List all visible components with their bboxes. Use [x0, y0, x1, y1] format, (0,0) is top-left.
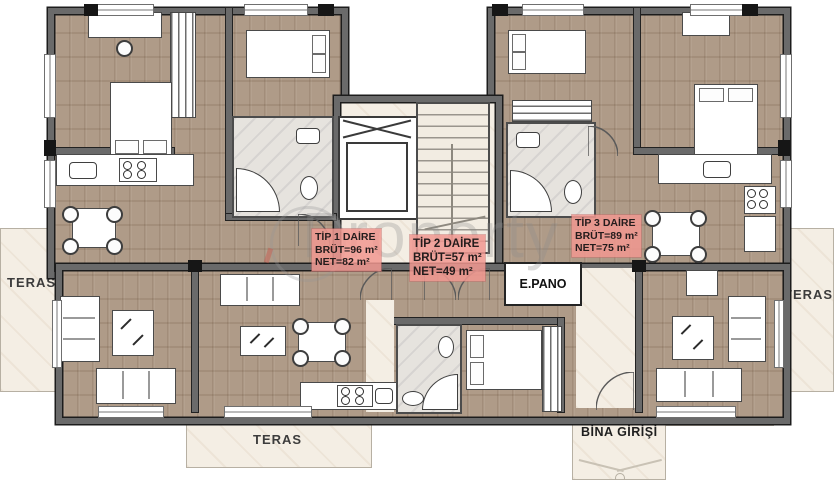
chair-icon	[62, 238, 79, 255]
pillow	[115, 140, 139, 154]
sofa	[60, 296, 100, 362]
column	[188, 260, 202, 272]
bed	[508, 30, 586, 74]
toilet-icon	[300, 176, 318, 200]
apartment-label-tip2: TİP 2 DAİRE BRÜT=57 m² NET=49 m²	[410, 235, 485, 281]
column	[632, 260, 646, 272]
bed	[246, 30, 330, 78]
bed	[466, 330, 542, 390]
kitchen-counter	[300, 382, 398, 410]
window	[780, 160, 792, 208]
column	[44, 140, 56, 156]
column	[778, 140, 790, 156]
chair-icon	[116, 40, 133, 57]
stove-icon	[744, 186, 776, 214]
chair-icon	[644, 246, 661, 263]
window	[690, 4, 750, 16]
chair-icon	[334, 350, 351, 367]
bed	[110, 82, 172, 158]
sink-icon	[402, 391, 424, 406]
partition	[192, 264, 198, 412]
chair-icon	[644, 210, 661, 227]
chair-icon	[292, 318, 309, 335]
apartment-name: TİP 3 DAİRE	[575, 217, 638, 230]
sofa	[220, 274, 300, 306]
bed	[694, 84, 758, 156]
apartment-gross-area: BRÜT=57 m²	[413, 251, 482, 265]
pillow	[470, 335, 484, 358]
chair-icon	[690, 246, 707, 263]
wardrobe	[512, 100, 592, 122]
apartment-name: TİP 2 DAİRE	[413, 237, 482, 251]
chair-icon	[292, 350, 309, 367]
apartment-net-area: NET=82 m²	[315, 256, 378, 269]
pillow	[728, 88, 753, 102]
pillow	[512, 52, 526, 70]
window	[44, 54, 56, 118]
door-arc	[596, 372, 634, 410]
column	[84, 4, 98, 16]
column	[742, 4, 758, 16]
column	[318, 4, 334, 16]
apartment-label-tip3: TİP 3 DAİRE BRÜT=89 m² NET=75 m²	[572, 215, 641, 257]
sink-icon	[69, 162, 97, 179]
kitchen-counter	[658, 154, 772, 184]
stove-icon	[337, 385, 373, 407]
sofa	[728, 296, 766, 362]
terrace-door	[52, 300, 62, 368]
apartment-gross-area: BRÜT=89 m²	[575, 230, 638, 243]
apartment-name: TİP 1 DAİRE	[315, 231, 378, 244]
apartment-label-tip1: TİP 1 DAİRE BRÜT=96 m² NET=82 m²	[312, 229, 381, 271]
shower	[236, 168, 280, 212]
pillow	[699, 88, 724, 102]
window	[522, 4, 584, 16]
door-arc	[360, 268, 392, 300]
column	[492, 4, 508, 16]
terrace-right-label: TERAS	[784, 287, 833, 302]
apartment-gross-area: BRÜT=96 m²	[315, 244, 378, 257]
pillow	[312, 35, 326, 54]
chair-icon	[690, 210, 707, 227]
floor-plan: TERAS TERAS TERAS BİNA GİRİŞİ	[0, 0, 834, 480]
partition	[636, 264, 642, 412]
wardrobe	[170, 12, 196, 118]
pillow	[470, 362, 484, 385]
sink-icon	[296, 128, 320, 144]
path-line	[617, 459, 662, 472]
epano-label: E.PANO	[520, 277, 567, 291]
window	[656, 406, 736, 418]
path-marker	[615, 473, 625, 480]
window	[44, 160, 56, 208]
sofa	[656, 368, 742, 402]
bathroom-tip2	[396, 324, 462, 414]
tv-unit	[672, 316, 714, 360]
chair-icon	[106, 238, 123, 255]
pillow	[512, 34, 526, 52]
sink-icon	[375, 388, 393, 404]
apartment-net-area: NET=49 m²	[413, 265, 482, 279]
side-table	[686, 270, 718, 296]
window	[244, 4, 308, 16]
kitchen-counter	[56, 154, 194, 186]
terrace-door	[774, 300, 784, 368]
door-arc	[588, 126, 618, 156]
apartment-net-area: NET=75 m²	[575, 242, 638, 255]
chair-icon	[62, 206, 79, 223]
chair-icon	[334, 318, 351, 335]
toilet-icon	[438, 336, 454, 358]
stove-icon	[119, 158, 157, 182]
toilet-icon	[564, 180, 582, 204]
sink-icon	[703, 161, 731, 178]
sink-icon	[516, 132, 540, 148]
terrace-bottom-label: TERAS	[253, 432, 302, 447]
wardrobe	[542, 326, 562, 412]
window	[98, 406, 164, 418]
tv-unit	[112, 310, 154, 356]
pillow	[312, 54, 326, 73]
tv-unit	[240, 326, 286, 356]
partition	[634, 8, 640, 154]
window	[224, 406, 312, 418]
entrance-label: BİNA GİRİŞİ	[581, 425, 658, 439]
shower	[422, 374, 458, 410]
chair-icon	[106, 206, 123, 223]
window	[94, 4, 154, 16]
sofa	[96, 368, 176, 404]
fridge	[744, 216, 776, 252]
window	[780, 54, 792, 118]
pillow	[143, 140, 167, 154]
